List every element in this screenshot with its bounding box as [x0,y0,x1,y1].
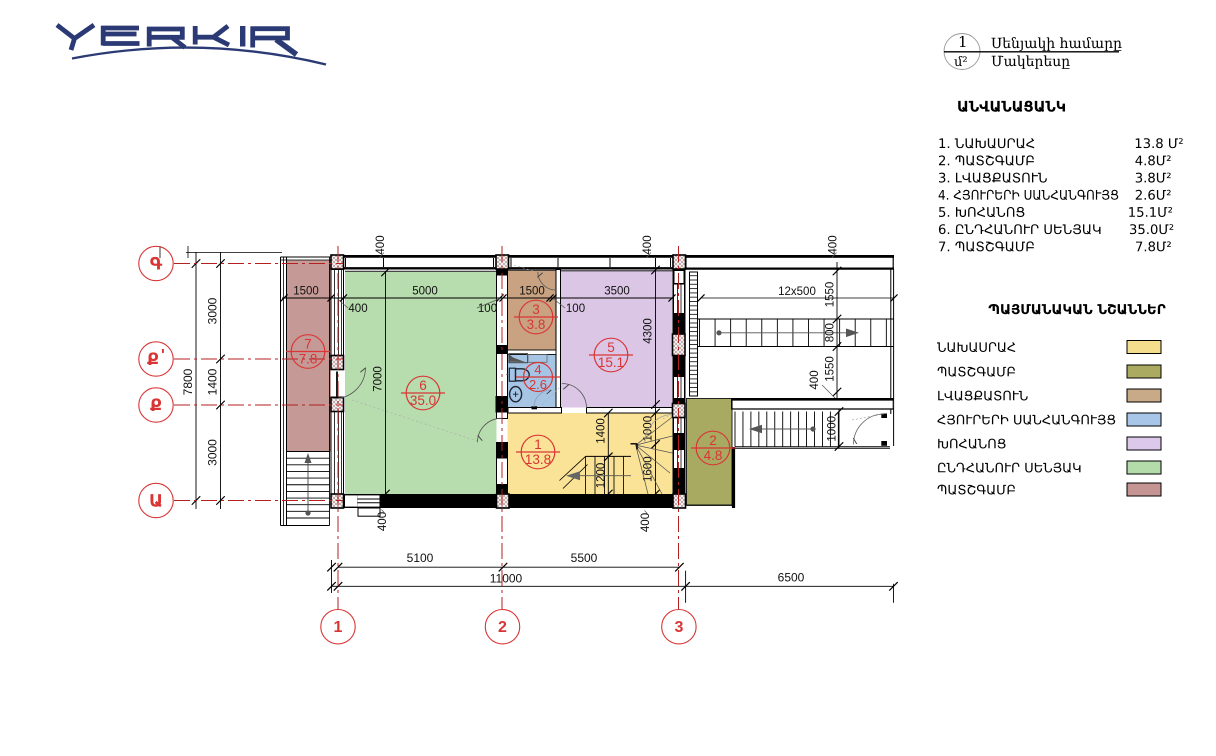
svg-text:800: 800 [825,323,837,342]
svg-text:400: 400 [828,235,840,254]
svg-text:7800: 7800 [181,368,195,395]
svg-text:3000: 3000 [206,297,220,324]
svg-text:100: 100 [566,303,585,315]
svg-text:400: 400 [640,513,652,532]
svg-text:3: 3 [674,619,683,636]
svg-text:1550: 1550 [825,356,837,382]
svg-text:5: 5 [607,340,615,355]
svg-text:5500: 5500 [571,551,598,565]
svg-text:15.1: 15.1 [598,355,624,370]
svg-text:3: 3 [532,302,540,317]
svg-text:1: 1 [534,437,542,452]
svg-text:13.8: 13.8 [525,452,551,467]
svg-text:400: 400 [809,370,821,389]
svg-text:1500: 1500 [519,286,545,298]
svg-text:2.6: 2.6 [529,377,547,392]
svg-text:1000: 1000 [827,416,839,442]
svg-text:400: 400 [377,512,389,531]
svg-text:11000: 11000 [490,572,523,586]
svg-text:5100: 5100 [407,551,434,565]
svg-text:1400: 1400 [595,418,607,444]
svg-text:400: 400 [375,235,387,254]
svg-text:1400: 1400 [206,368,220,395]
svg-text:4: 4 [534,362,541,377]
svg-text:2: 2 [498,619,507,636]
svg-text:4.8: 4.8 [704,448,723,463]
svg-text:6: 6 [419,378,427,393]
svg-text:1500: 1500 [293,286,319,298]
svg-text:5000: 5000 [412,286,438,298]
svg-text:7000: 7000 [373,366,385,392]
svg-text:7: 7 [304,336,312,351]
svg-text:3000: 3000 [206,439,220,466]
svg-text:3.8: 3.8 [527,317,546,332]
svg-text:': ' [161,347,165,364]
svg-text:1: 1 [334,619,343,636]
svg-text:12x500: 12x500 [778,286,816,298]
svg-text:1550: 1550 [825,282,837,308]
svg-text:400: 400 [642,235,654,254]
svg-text:400: 400 [348,303,367,315]
svg-text:3500: 3500 [604,286,630,298]
svg-text:2: 2 [709,433,717,448]
svg-text:100: 100 [478,303,497,315]
svg-text:35.0: 35.0 [410,393,436,408]
svg-text:6500: 6500 [778,571,805,585]
svg-text:7.8: 7.8 [299,352,318,367]
svg-text:4300: 4300 [643,318,655,344]
